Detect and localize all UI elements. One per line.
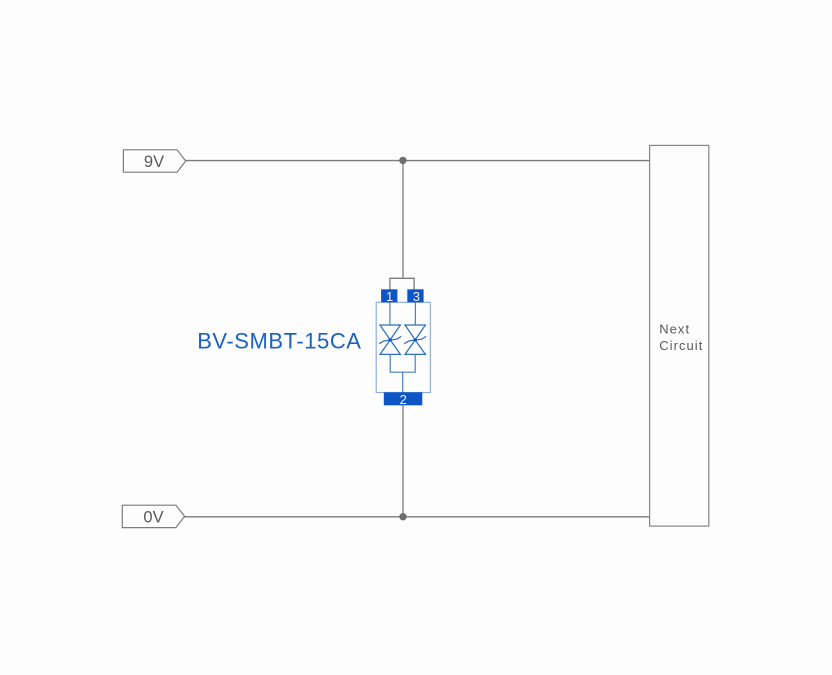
svg-text:9V: 9V (144, 153, 164, 171)
svg-text:Next: Next (659, 322, 690, 337)
svg-text:2: 2 (400, 392, 407, 407)
svg-text:3: 3 (413, 289, 420, 304)
svg-text:1: 1 (386, 289, 393, 304)
svg-text:Circuit: Circuit (659, 338, 703, 353)
svg-text:0V: 0V (143, 509, 163, 527)
svg-text:BV-SMBT-15CA: BV-SMBT-15CA (197, 328, 361, 353)
